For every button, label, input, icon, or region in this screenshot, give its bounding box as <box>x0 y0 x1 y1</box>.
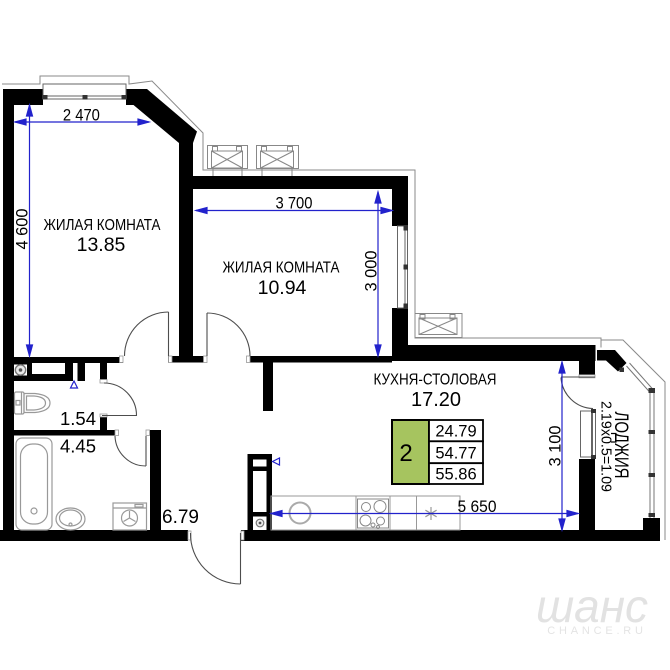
svg-text:3 000: 3 000 <box>362 251 381 292</box>
svg-text:4.45: 4.45 <box>60 436 96 457</box>
svg-text:3 100: 3 100 <box>546 426 565 467</box>
svg-text:24.79: 24.79 <box>435 423 476 441</box>
svg-text:54.77: 54.77 <box>435 445 476 463</box>
svg-text:3 700: 3 700 <box>276 194 313 213</box>
svg-text:ЖИЛАЯ КОМНАТА: ЖИЛАЯ КОМНАТА <box>44 217 162 234</box>
svg-text:5 650: 5 650 <box>458 497 497 516</box>
svg-text:КУХНЯ-СТОЛОВАЯ: КУХНЯ-СТОЛОВАЯ <box>374 372 497 389</box>
svg-text:13.85: 13.85 <box>77 234 126 256</box>
svg-text:ЖИЛАЯ КОМНАТА: ЖИЛАЯ КОМНАТА <box>223 260 341 277</box>
svg-text:55.86: 55.86 <box>435 466 476 484</box>
svg-text:10.94: 10.94 <box>258 277 307 299</box>
svg-text:1.54: 1.54 <box>60 408 96 429</box>
svg-text:2.19х0.5=1.09: 2.19х0.5=1.09 <box>598 401 615 492</box>
svg-text:17.20: 17.20 <box>411 389 461 411</box>
svg-text:2 470: 2 470 <box>63 106 100 125</box>
svg-text:2: 2 <box>399 440 412 467</box>
svg-text:4 600: 4 600 <box>13 209 32 250</box>
svg-text:6.79: 6.79 <box>162 507 199 528</box>
svg-text:CHANCE.RU: CHANCE.RU <box>547 625 647 637</box>
